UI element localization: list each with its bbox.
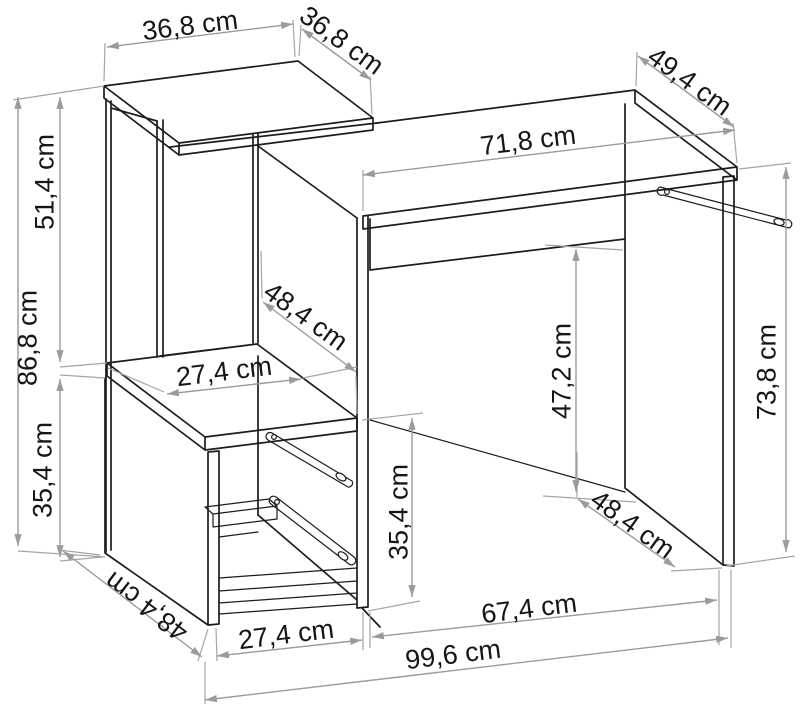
drawer-slide-lower	[269, 496, 356, 565]
dim-label-left-panel-depth: 48,4 cm	[99, 566, 194, 648]
dim-label-lower-section-height: 35,4 cm	[27, 422, 57, 518]
dim-label-total-width: 99,6 cm	[404, 634, 503, 675]
dim-label-side-panel-depth-mid: 48,4 cm	[258, 276, 353, 357]
dim-label-knee-space-width: 67,4 cm	[480, 588, 579, 629]
dim-label-shelf-top-width: 36,8 cm	[141, 5, 240, 46]
dim-label-lower-inner-height: 35,4 cm	[383, 464, 413, 560]
dimension-diagram: 36,8 cm 36,8 cm 49,4 cm 71,8 cm 51,4 cm …	[0, 0, 800, 716]
top-shelf	[104, 61, 373, 155]
cabinet-bottom-rails	[219, 532, 357, 614]
desk-line-drawing	[104, 61, 792, 627]
leg-rear-edge	[253, 133, 258, 515]
diagram-canvas: 36,8 cm 36,8 cm 49,4 cm 71,8 cm 51,4 cm …	[0, 0, 800, 716]
keyboard-slide-bracket	[657, 187, 792, 228]
dim-label-knee-space-height: 47,2 cm	[546, 323, 576, 419]
dim-label-right-panel-depth: 48,4 cm	[585, 484, 680, 565]
dim-label-desk-height: 73,8 cm	[751, 324, 781, 420]
desktop-rear-edge	[170, 123, 377, 218]
dim-label-left-unit-height: 86,8 cm	[12, 290, 42, 386]
right-panel	[625, 104, 734, 566]
left-unit-back-edge	[106, 99, 157, 552]
dim-label-drawer-front-width: 27,4 cm	[237, 614, 336, 655]
dim-label-desktop-depth: 49,4 cm	[642, 41, 737, 122]
upper-left-panel	[157, 120, 163, 357]
dimension-labels: 36,8 cm 36,8 cm 49,4 cm 71,8 cm 51,4 cm …	[12, 0, 781, 675]
dim-label-desktop-width: 71,8 cm	[479, 120, 578, 161]
desk-apron	[370, 219, 625, 270]
dim-label-upper-section-height: 51,4 cm	[29, 134, 59, 230]
desktop	[363, 90, 737, 229]
